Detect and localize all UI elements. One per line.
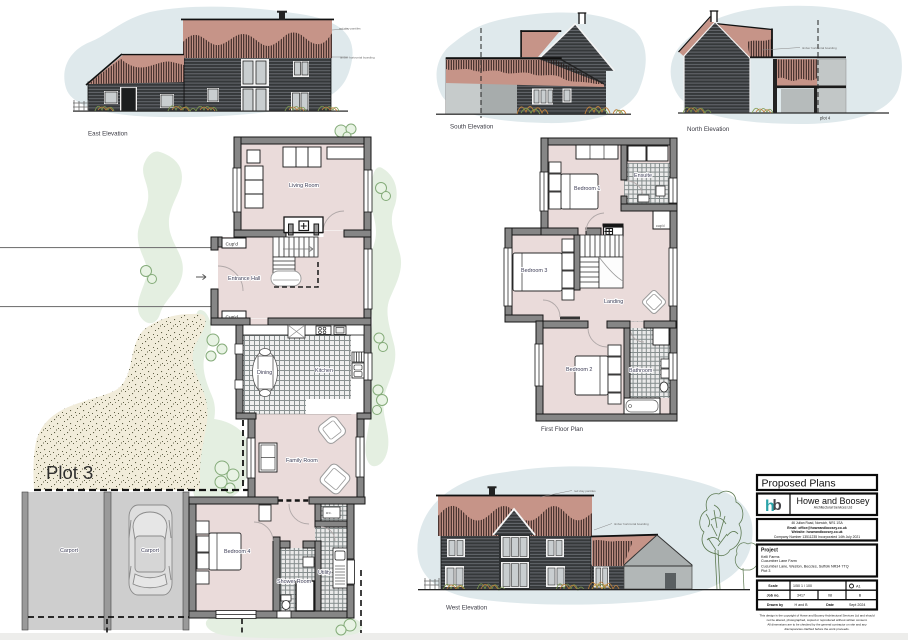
svg-text:East Elevation: East Elevation [88,131,128,138]
svg-text:Bedroom 2: Bedroom 2 [566,367,592,373]
svg-text:Sept 2024: Sept 2024 [849,603,865,607]
svg-text:Dining: Dining [257,370,272,376]
svg-text:08: 08 [828,594,832,598]
svg-text:Bedroom 4: Bedroom 4 [224,549,250,555]
svg-text:w.c.: w.c. [326,511,332,515]
svg-text:not be altered, photographed,: not be altered, photographed, copied or … [767,618,868,622]
svg-text:Cup'd: Cup'd [226,242,239,248]
svg-text:First Floor Plan: First Floor Plan [541,426,584,433]
svg-text:Howe and Boosey: Howe and Boosey [796,496,870,506]
svg-text:plot 4: plot 4 [820,116,831,121]
svg-text:timber horizontal boarding: timber horizontal boarding [340,56,375,60]
svg-text:Living Room: Living Room [289,183,319,189]
svg-text:1/50 1 / 100: 1/50 1 / 100 [793,584,812,588]
svg-text:Drawn by: Drawn by [767,603,783,607]
svg-text:Plot 3: Plot 3 [46,462,93,483]
svg-text:North Elevation: North Elevation [687,126,730,133]
svg-text:Scale: Scale [768,584,777,588]
svg-text:A1: A1 [856,584,861,588]
svg-text:Landing: Landing [604,299,623,305]
svg-text:b: b [773,497,782,514]
svg-text:West Elevation: West Elevation [446,605,488,612]
svg-text:H and B: H and B [795,603,809,607]
svg-text:Company Number 13511235 Incorp: Company Number 13511235 Incorporated 14t… [774,535,860,539]
svg-text:Bedroom 3: Bedroom 3 [521,268,547,274]
svg-text:Bathroom: Bathroom [629,368,653,374]
svg-text:3417: 3417 [797,594,805,598]
svg-text:timber horizontal boarding: timber horizontal boarding [802,46,837,50]
svg-text:discrepancies clarified before: discrepancies clarified before the work … [784,627,849,631]
svg-text:Utility: Utility [318,570,331,576]
svg-text:Carport: Carport [141,548,159,554]
svg-text:Job no.: Job no. [767,594,780,598]
svg-text:Project: Project [761,548,778,554]
svg-text:Proposed Plans: Proposed Plans [762,478,836,490]
svg-text:Entrance Hall: Entrance Hall [228,276,260,282]
svg-text:This design is the copyright o: This design is the copyright of Howe and… [759,614,874,618]
svg-text:Website: howeandboosey.co.uk: Website: howeandboosey.co.uk [791,530,842,534]
svg-text:Bedroom 1: Bedroom 1 [574,186,600,192]
svg-text:red clay pantiles: red clay pantiles [339,27,361,31]
svg-text:red clay pantiles: red clay pantiles [574,489,596,493]
svg-text:Date: Date [826,603,834,607]
svg-text:Ensuite: Ensuite [634,173,652,179]
svg-text:Kitchen: Kitchen [315,368,333,374]
svg-text:South Elevation: South Elevation [450,124,494,131]
svg-text:cup'd: cup'd [656,224,664,228]
svg-text:Family Room: Family Room [286,458,318,464]
svg-text:46 Julian Road, Norwich, NR1 1: 46 Julian Road, Norwich, NR1 1SA [791,521,843,525]
svg-text:Carport: Carport [60,548,78,554]
svg-text:Architectural Services Ltd: Architectural Services Ltd [814,506,853,510]
svg-text:Shower Room: Shower Room [277,579,312,585]
svg-text:Cucumber Lane Farm: Cucumber Lane Farm [761,559,797,563]
svg-text:timber horizontal boarding: timber horizontal boarding [614,522,649,526]
svg-text:All dimensions are to be check: All dimensions are to be checked by the … [767,623,867,627]
svg-text:Plot 3: Plot 3 [761,569,770,573]
svg-text:Cucumber Lane, Weston, Beccles: Cucumber Lane, Weston, Beccles, Suffolk … [761,565,849,569]
